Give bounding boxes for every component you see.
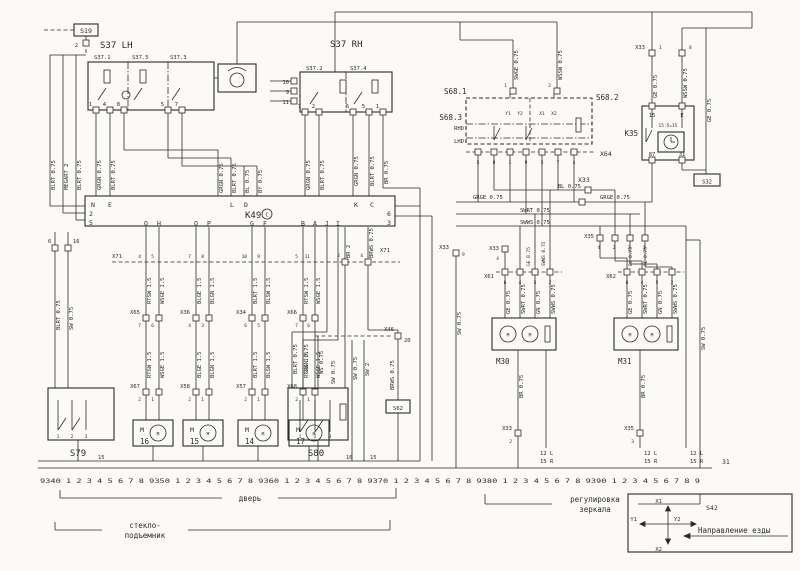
legend-window-lifter: стекло- [129,521,161,530]
motor-symbol: M [190,426,194,434]
track-tick: 15 [370,455,377,461]
pin-number: 2 [509,439,512,445]
s37lh-section: S37.1 [94,55,111,61]
pin-number: 8 [117,102,120,108]
lamp-icon [122,91,130,99]
pin-number: 7 [295,323,298,329]
wire-label: BLRT 0.75 [77,160,83,190]
wire-label: WSSW 0.75 [683,68,689,98]
pin-number: 9 [462,252,465,258]
pin-number: E [680,113,683,119]
s37lh-box [88,62,214,110]
track-end-ref: 31 [722,458,730,466]
motor-symbol: M [651,333,654,339]
pin-number: 1 [57,434,60,440]
k49-box [85,196,395,226]
pin-number: 2 [244,397,247,403]
wire-label: BLRT 0.75 [51,160,57,190]
pin-number: 1 [509,160,512,166]
wire-label: BL 0.75 [245,170,251,193]
s37rh-title: S37 RH [330,40,363,50]
pin-number: 9 [257,254,260,260]
s42-axis: Y1 [630,517,637,523]
motor-symbol: M [157,432,160,438]
pin-number: 6 [346,104,349,110]
wire-label: WSGE 1.5 [160,278,166,305]
wire-label: SW 0.75 [331,361,337,384]
pin-number: 6 [307,323,310,329]
wire-label: SWWS 0.75 [551,284,557,314]
pin-number: 1 [376,104,379,110]
pin-number: 1 [307,397,310,403]
motor-16-box [133,420,173,446]
legend-mirror: регулировка [570,495,620,504]
motor-symbol: M [262,432,265,438]
axis-label: Y2 [517,111,523,117]
k49-pin: I [336,220,340,228]
pin-number: 3 [541,160,544,166]
k49-pin: N [91,201,95,209]
wire-label: BLRT 0.75 [320,160,326,190]
track-ref: 12 L [540,451,554,457]
wire-label: MEGART 2 [64,164,70,191]
connector-label: X35 [624,426,634,432]
k49-pin: L [230,201,234,209]
x71-label: X71 [380,248,390,254]
pin-number: 87 [649,152,656,158]
s42-direction-label: Направление езды [698,526,771,535]
k49-pin: A [313,220,317,228]
wire-label: RTSW 1.5 [147,278,153,305]
pin-number: 6 [48,239,51,245]
s68-ref: S68.1 [444,87,467,96]
wire-label: SW 0.75 [353,357,359,380]
connector-label: X35 [584,234,594,240]
wire-label: BL 0.75 [628,247,634,266]
s42-label: S42 [706,504,718,512]
motor-number: 15 [190,437,199,446]
s68-ref: S68.2 [596,93,619,102]
wire-label: BLRT 1.5 [253,278,259,305]
connector-label: X33 [578,176,590,184]
pin-number: 6 [504,280,507,286]
pin-number: 5 [534,280,537,286]
pin-number: 5 [477,160,480,166]
wire-label: BLGE 1.5 [197,352,203,379]
k49-pin: G [250,220,254,228]
pin-number: 5 [295,254,298,260]
k49-pin: 6 [387,210,391,218]
wire-label: BRWS 0.75 [390,360,396,390]
k49-pin: 5 [89,219,93,227]
connector-label: X58 [180,384,190,390]
wire-label: WSGE 1.5 [316,278,322,305]
motor-symbol: M [140,426,144,434]
pin-number: 2 [314,434,317,440]
pin-number: 5 [151,254,154,260]
motor-17-box [289,420,329,446]
pin-number: 4 [598,245,601,251]
motor-number: 16 [140,437,150,446]
pin-number: 8 [689,45,692,51]
current-track-scale: 9340 1 2 3 4 5 6 7 8 9350 1 2 3 4 5 6 7 … [40,477,700,485]
k49-pin: H [157,220,161,228]
m30-label: M30 [496,357,510,366]
wire-label: WSGE 1.5 [160,352,166,379]
wire-label: BRWS 0.75 [369,228,375,258]
pin-number: 7 [557,160,560,166]
pin-number: 2 [295,397,298,403]
pin-number: 3 [85,434,88,440]
window-lifter-symbol [218,64,256,92]
wire-label: BR 0.75 [519,375,525,398]
connector-label: X36 [180,310,190,316]
motor-symbol: M [529,333,532,339]
pin-number: 1 [299,434,302,440]
m31-label: M31 [618,357,632,366]
pin-number: 1 [89,102,92,108]
k49-pin: D [244,201,248,209]
wire-label: GE 0.75 [506,291,512,314]
pin-number: 6 [244,323,247,329]
wire-label: GRGE 0.75 [600,195,630,201]
wire-label: SWWS 0.75 [520,220,550,226]
wire-label: GRGE 0.75 [473,195,503,201]
wire-label: BLGN 1.5 [210,278,216,305]
wire-label: GRGN 0.75 [354,156,360,186]
k49-pin: Q [144,220,148,228]
k49-pin: K [354,201,358,209]
pin-number: 4 [496,256,499,262]
wire-label: BL 0.75 [558,184,581,190]
pin-number: 1 [659,45,662,51]
wire-label: SWGE 0.75 [514,50,520,80]
wire-label: GE 0.75 [643,247,649,266]
wire-label: GN 0.75 [536,291,542,314]
pin-number: 8 [493,160,496,166]
wire-label: SWRT 0.75 [520,208,550,214]
s32-label: S32 [702,180,712,186]
track-tick: 15 [98,455,105,461]
wire-label: GRGN 0.75 [304,344,310,374]
connector-label: X67 [130,384,140,390]
pin-number: 2 [613,245,616,251]
pin-number: 5 [257,323,260,329]
s19-pin: 2 [75,43,78,49]
wire-label: BLRT 0.75 [232,163,238,193]
wire-label: GE 0.75 [628,291,634,314]
s37rh-section: S37.4 [350,66,367,72]
wire-label: SWWS 0.75 [541,241,547,266]
pin-number: 11 [282,100,289,106]
motor-14-box [238,420,278,446]
pin-number: 7 [298,104,301,110]
pin-number: 3 [329,434,332,440]
s68-box [466,98,592,144]
pin-number: 6 [626,280,629,286]
s79-label: S79 [70,449,86,459]
axis-label: X1 [539,111,545,117]
track-ref: 12 L [690,451,704,457]
k49-pin: 3 [387,219,391,227]
pin-number: 2 [188,397,191,403]
motor-symbol: M [629,333,632,339]
pin-number: 2 [138,397,141,403]
wire-label: SW 0.75 [69,307,75,330]
pin-number: 16 [73,239,80,245]
k49-pin: 2 [89,210,93,218]
wire-label: BLRT 1.5 [253,352,259,379]
wire-label: SW 0.75 [701,327,707,350]
wire-label: BLRT 0.75 [370,156,376,186]
wire-label: BLRT 0.75 [111,160,117,190]
pin-number: 2 [337,253,340,259]
pin-number: 5 [161,102,164,108]
connector-label: X64 [600,150,612,158]
pin-number: 4 [360,253,363,259]
k49-pin: C [370,201,374,209]
connector-label: X34 [236,310,247,316]
pin-number: 4 [573,160,576,166]
pin-number: 5 [656,280,659,286]
s37rh-section: S37.2 [306,66,323,72]
wiring-diagram-page: S19 2 S37 LH S37.1 S37.5 S37.3 1 4 8 5 7… [0,0,800,571]
k49-pin: E [108,201,112,209]
pin-number: 7 [175,102,178,108]
wire-label: GE 0.75 [707,99,713,122]
wire-label: BLRT 0.75 [56,300,62,330]
s37lh-title: S37 LH [100,41,133,51]
s68-lhd: LHD [454,139,464,145]
connector-label: X33 [502,426,512,432]
x71-label: X71 [112,254,122,260]
connector-label: X57 [236,384,246,390]
pin-number: 10 [282,80,289,86]
pin-number: 4 [103,102,107,108]
s37lh-section: S37.5 [132,55,149,61]
track-ref: 12 L [644,451,658,457]
pin-number: 31 [679,152,686,158]
wire-label: WSSW 0.75 [558,50,564,80]
motor-15-box [183,420,223,446]
pin-number: 11 [305,254,311,260]
s68-rhd: RHD [454,126,464,132]
wiring-diagram-canvas: S19 2 S37 LH S37.1 S37.5 S37.3 1 4 8 5 7… [0,0,800,571]
connector-label: X65 [130,310,140,316]
legend-mirror: зеркала [579,505,611,514]
k49-pin: F [263,220,267,228]
k35-note: 15:5=15 [659,123,678,129]
connector-label: X46 [384,327,394,333]
pin-number: 1 [201,397,204,403]
connector-label: X33 [489,246,499,252]
wire-label: BR 2 [346,245,352,258]
pin-number: 2 [548,83,551,89]
s62-label: S62 [393,406,403,412]
connector-label: X61 [484,274,494,280]
pin-number: 4 [188,323,191,329]
pin-number: 6 [151,323,154,329]
wire-label: RTSW 1.5 [304,278,310,305]
motor-number: 14 [245,437,255,446]
connector-label: X33 [635,45,645,51]
pin-number: 3 [201,323,204,329]
wire-label: GRGN 0.75 [306,160,312,190]
wire-label: GN 0.75 [658,291,664,314]
track-ref: 15 R [690,459,704,465]
s37lh-section: S37.3 [170,55,187,61]
wire-label: BR 0.75 [384,161,390,184]
wire-label: BLSW 1.5 [266,352,272,379]
pin-number: 1 [151,397,154,403]
track-tick: 16 [346,455,353,461]
connector-label: X68 [287,384,297,390]
pin-number: 15 [649,113,656,119]
axis-label: X2 [551,111,557,117]
k35-label: K35 [624,129,638,138]
wire-label: WS 0.75 [319,351,325,374]
wire-label: SWRT 0.75 [643,284,649,314]
connector-label: X33 [439,245,449,251]
wire-label: SW 2 [365,363,371,376]
wire-label: SWRT 0.75 [521,284,527,314]
motor-symbol: M [507,333,510,339]
pin-number: 1 [504,83,507,89]
wire-label: RTSW 1.5 [147,352,153,379]
wire-label: BLGN 1.5 [210,352,216,379]
wire-label: BLSW 1.5 [266,278,272,305]
track-ref: 15 R [644,459,658,465]
s42-box [628,494,792,552]
s42-axis: Y2 [674,517,681,523]
legend-door: дверь [239,494,262,503]
k49-badge: C [265,213,268,219]
s80-label: S80 [308,449,324,459]
pin-number: 9 [286,90,289,96]
wire-label: BLGE 1.5 [197,278,203,305]
k49-pin: O [194,220,198,228]
motor-symbol: M [207,432,210,438]
pin-number: 2 [312,104,315,110]
k49-pin: P [207,220,211,228]
s19-label: S19 [80,27,92,35]
pin-number: 3 [631,439,634,445]
motor-symbol: M [245,426,249,434]
pin-number: 5 [362,104,365,110]
k49-pin: B [301,220,305,228]
wire-label: GE 0.75 [653,75,659,98]
connector-label: X66 [287,310,297,316]
pin-number: 7 [188,254,191,260]
pin-number: 4 [138,254,141,260]
wire-label: BLRT 0.75 [293,344,299,374]
s42-axis: X2 [655,547,662,553]
pin-number: 20 [404,338,411,344]
s42-axis: X1 [655,499,662,505]
pin-number: 7 [138,323,141,329]
wire-label: GRGN 0.75 [97,160,103,190]
k49-pin: J [325,220,329,228]
connector-label: X62 [606,274,616,280]
wire-label: SWWS 0.75 [673,284,679,314]
wire-label: BR 0.75 [641,375,647,398]
wire-label: SW 0.75 [457,312,463,335]
wire-label: GE 0.75 [526,247,532,266]
pin-number: 8 [201,254,204,260]
motor-symbol: M [296,426,300,434]
wire-label: GRGN 0.75 [219,163,225,193]
track-ref: 15 R [540,459,554,465]
s68-ref: S68.3 [439,113,462,122]
pin-number: 2 [71,434,74,440]
pin-number: 9 [525,160,528,166]
legend-window-lifter: подъемник [125,531,166,540]
wire-label: BY 0.75 [258,170,264,193]
axis-label: Y1 [505,111,511,117]
pin-number: 1 [257,397,260,403]
pin-number: 10 [242,254,248,260]
